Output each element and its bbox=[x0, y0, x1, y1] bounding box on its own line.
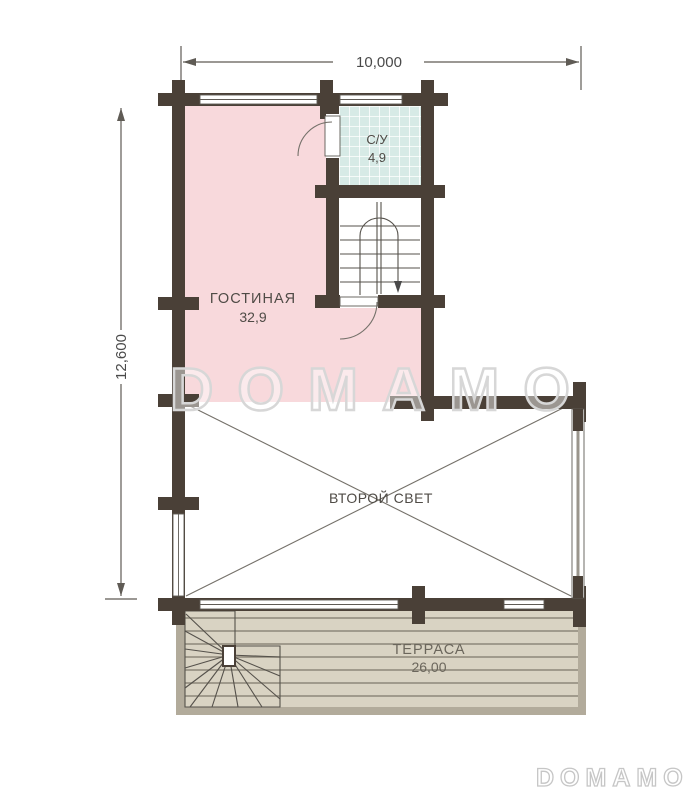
dimension-height-label: 12,600 bbox=[113, 334, 130, 380]
newel-post bbox=[223, 646, 235, 666]
dimension-width: 10,000 bbox=[181, 46, 581, 90]
terrace-area-value: 26,00 bbox=[411, 659, 446, 675]
bathroom-area-value: 4,9 bbox=[368, 150, 386, 165]
window-living-top bbox=[200, 95, 317, 104]
floor-plan-drawing: 10,000 12,600 bbox=[0, 0, 693, 800]
floor-plan-page: 10,000 12,600 bbox=[0, 0, 693, 800]
living-room-area-value: 32,9 bbox=[239, 309, 266, 325]
dimension-height: 12,600 bbox=[105, 108, 137, 599]
second-light-glazing bbox=[572, 409, 584, 598]
window-bottom-small bbox=[504, 600, 544, 609]
window-bathroom-top bbox=[340, 95, 402, 104]
window-bottom-long bbox=[200, 600, 398, 609]
bathroom-label: С/У bbox=[366, 132, 388, 147]
stairwell-area bbox=[339, 198, 421, 295]
dimension-width-label: 10,000 bbox=[356, 54, 402, 71]
second-light-label: ВТОРОЙ СВЕТ bbox=[329, 489, 433, 506]
living-room-label: ГОСТИНАЯ bbox=[210, 291, 296, 307]
terrace-label: ТЕРРАСА bbox=[392, 642, 465, 658]
window-left-wall bbox=[173, 514, 184, 596]
